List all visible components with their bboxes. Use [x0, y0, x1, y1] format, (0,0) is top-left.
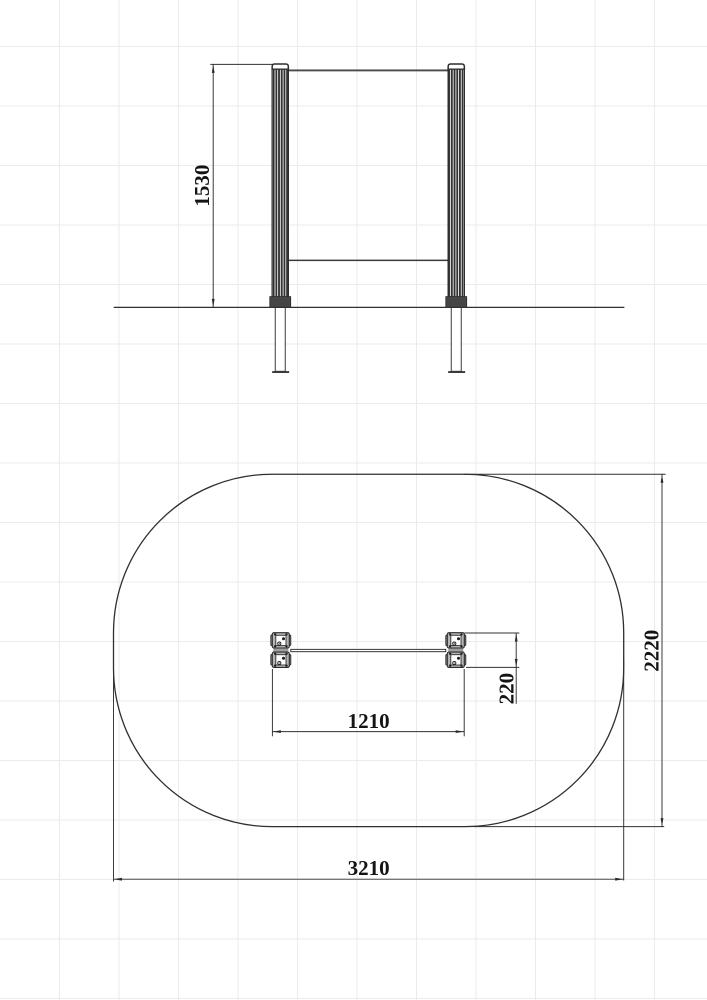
- svg-text:2220: 2220: [639, 630, 663, 672]
- svg-text:220: 220: [494, 673, 518, 705]
- svg-text:1530: 1530: [190, 165, 214, 207]
- svg-text:1210: 1210: [348, 709, 390, 733]
- svg-text:3210: 3210: [348, 856, 390, 880]
